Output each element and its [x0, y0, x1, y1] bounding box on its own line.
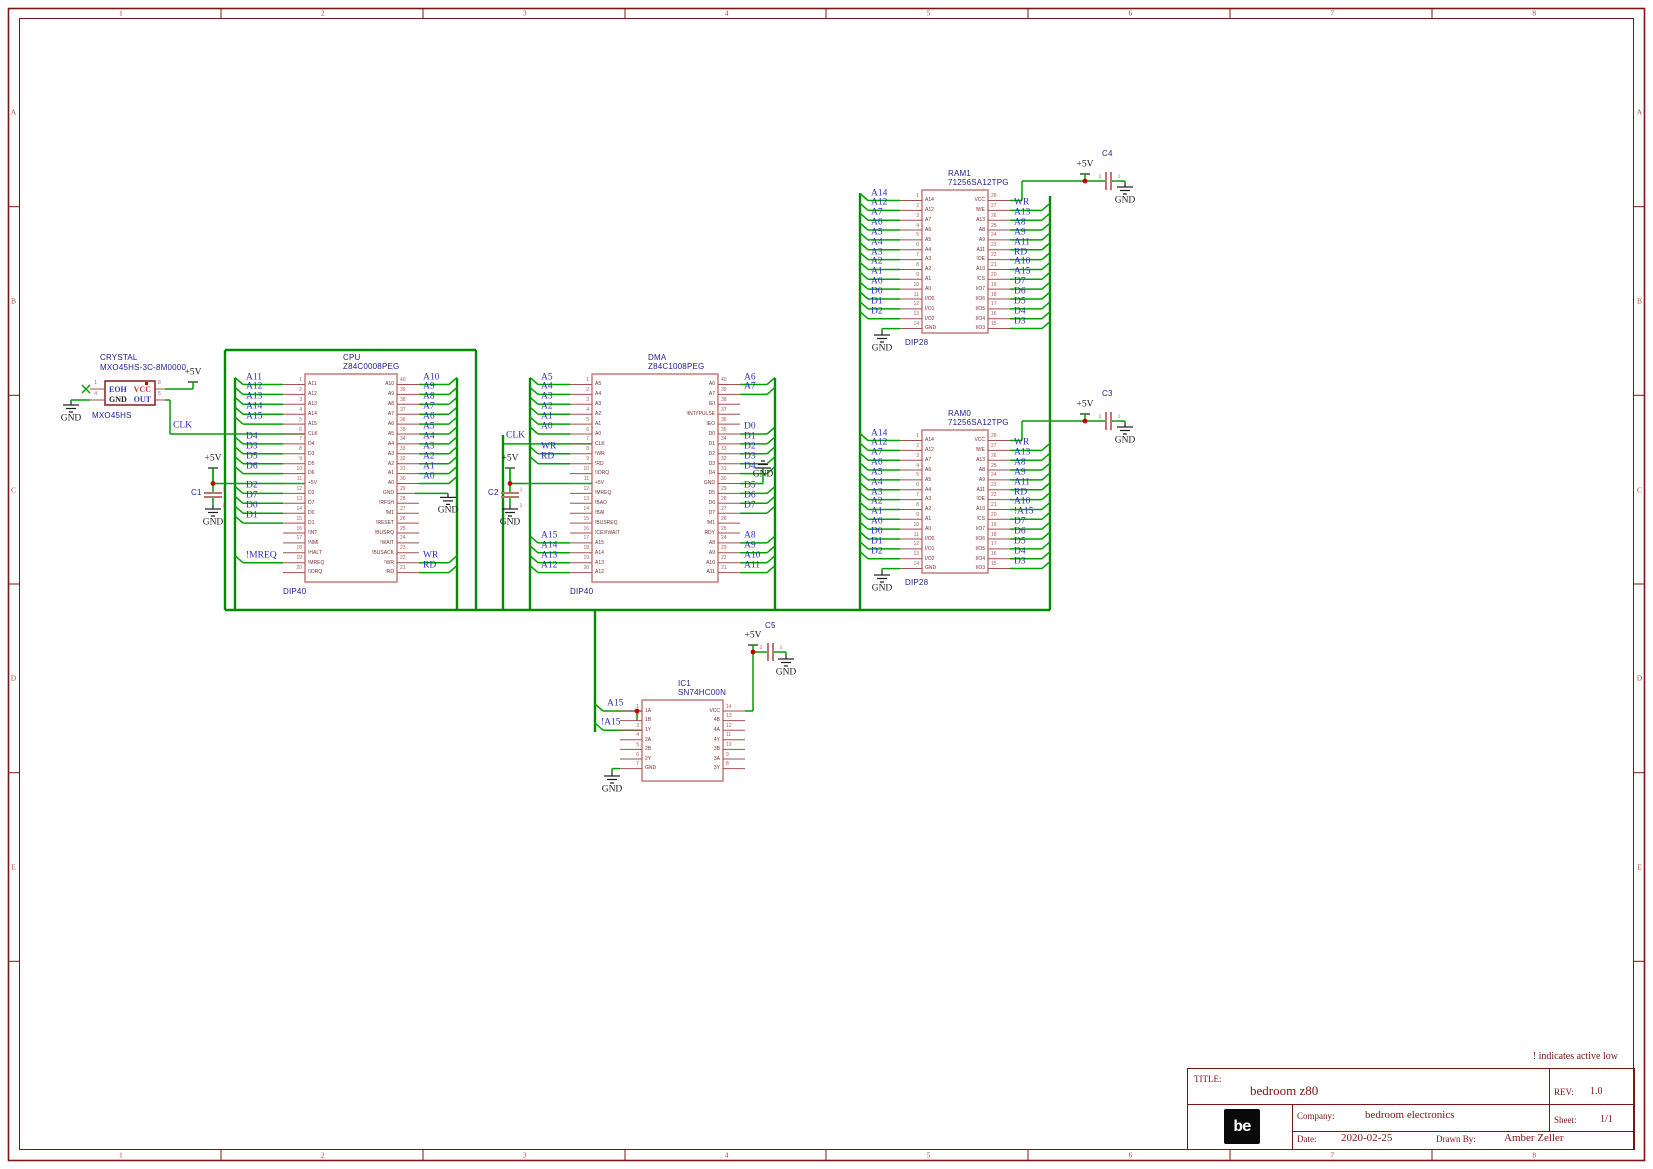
pin-number: 4: [916, 224, 919, 229]
pin-name: A10: [385, 382, 394, 387]
pin-name: A1: [595, 422, 601, 427]
pin-number: 33: [721, 447, 727, 452]
pin-name: A4: [595, 392, 601, 397]
pin-number: 21: [991, 503, 997, 508]
pin-number: 13: [296, 497, 302, 502]
pin-number: 2: [916, 204, 919, 209]
pin-number: 30: [400, 477, 406, 482]
pin-name: !BAO: [595, 501, 607, 506]
pin-name: A11: [308, 382, 317, 387]
pin-number: 23: [991, 483, 997, 488]
pin-number: 14: [913, 562, 919, 567]
pin-name: A14: [925, 198, 934, 203]
chip-part: 71256SA12TPG: [948, 179, 1009, 187]
pin-name: D5: [308, 462, 314, 467]
pin-number: 8: [586, 447, 589, 452]
pin-number: 3: [916, 454, 919, 459]
v5-label: +5V: [502, 455, 519, 465]
sheet-title: bedroom z80: [1250, 1083, 1318, 1099]
pin-name: CLK: [308, 432, 318, 437]
pin-name: I/O3: [976, 326, 985, 331]
pin-number: 14: [583, 507, 589, 512]
pin-number: 24: [991, 233, 997, 238]
pin-name: A1: [925, 517, 931, 522]
v5-label: +5V: [1077, 161, 1094, 171]
pin-number: 19: [296, 556, 302, 561]
rev-label: REV:: [1554, 1087, 1574, 1097]
pin-name: A12: [308, 392, 317, 397]
pin-name: +5V: [308, 481, 317, 486]
pin-number: 37: [721, 408, 727, 413]
pin-name: A3: [388, 452, 394, 457]
pin-number: 7: [636, 762, 639, 767]
pin-name: RDY: [704, 531, 715, 536]
pin-name: VCC: [974, 438, 985, 443]
pin-number: 31: [400, 467, 406, 472]
capacitor-pin-number: 2: [1099, 415, 1102, 420]
pin-name: !IORQ: [595, 471, 609, 476]
pin-number: 36: [721, 418, 727, 423]
pin-number: 28: [721, 497, 727, 502]
frame-column-number: 2: [321, 10, 325, 18]
frame-row-letter: E: [11, 864, 16, 872]
pin-number: 39: [721, 388, 727, 393]
pin-name: A3: [925, 257, 931, 262]
pin-name: I/O4: [976, 557, 985, 562]
pin-name: D6: [308, 471, 314, 476]
active-low-note: ! indicates active low: [1533, 1052, 1618, 1062]
pin-name: !INT: [308, 531, 317, 536]
pin-number: 11: [726, 733, 731, 738]
pin-number: 13: [913, 312, 919, 317]
capacitor-ref: C3: [1102, 390, 1113, 398]
pin-name: !RD: [595, 462, 604, 467]
pin-number: 4: [586, 408, 589, 413]
pin-name: 4B: [714, 718, 720, 723]
pin-name: !WAIT: [380, 541, 394, 546]
pin-number: 2: [916, 444, 919, 449]
pin-number: 25: [991, 224, 997, 229]
gnd-label: GND: [500, 519, 521, 529]
pin-name: GND: [925, 326, 936, 331]
pin-number: 29: [721, 487, 727, 492]
pin-name: A6: [925, 228, 931, 233]
pin-number: 12: [913, 542, 919, 547]
pin-number: 31: [721, 467, 727, 472]
pin-name: D6: [709, 501, 715, 506]
sheet-border-inner: [20, 19, 1634, 1150]
pin-number: 34: [721, 437, 727, 442]
pin-name: A12: [925, 448, 934, 453]
pin-name: D7: [308, 501, 314, 506]
pin-name: 1A: [645, 709, 651, 714]
pin-number: 9: [299, 457, 302, 462]
pin-name: VCC: [709, 709, 720, 714]
junction-dot: [751, 650, 756, 655]
pin-number: 16: [991, 552, 997, 557]
pin-name: 2Y: [645, 757, 651, 762]
gnd-label: GND: [872, 585, 893, 595]
company-logo: be: [1224, 1109, 1260, 1144]
pin-number: 2: [299, 388, 302, 393]
pin-number: 36: [400, 418, 406, 423]
pin-name: +5V: [595, 481, 604, 486]
pin-name: A6: [388, 422, 394, 427]
pin-name: I/O7: [976, 287, 985, 292]
pin-name: A13: [976, 218, 985, 223]
pin-number: 25: [991, 464, 997, 469]
frame-column-number: 5: [927, 10, 931, 18]
pin-number: 8: [916, 263, 919, 268]
title-label: TITLE:: [1194, 1074, 1222, 1084]
chip-ref: DMA: [648, 354, 666, 362]
pin-number: 15: [991, 322, 997, 327]
pin-name: A11: [976, 248, 985, 253]
pin-name: A7: [709, 392, 715, 397]
net-label: A15: [246, 413, 262, 423]
pin-number: 21: [991, 263, 997, 268]
pin-name: A14: [925, 438, 934, 443]
pin-number: 26: [991, 454, 997, 459]
gnd-label: GND: [438, 507, 459, 517]
pin-number: 11: [584, 477, 589, 482]
pin-number: 30: [721, 477, 727, 482]
capacitor-ref: C5: [765, 622, 776, 630]
pin-number: 11: [914, 533, 919, 538]
pin-name: D2: [709, 452, 715, 457]
pin-number: 17: [583, 536, 589, 541]
chip-package: DIP28: [905, 579, 928, 587]
sheet-border-outer: [9, 9, 1645, 1161]
pin-name: !CS: [977, 517, 985, 522]
pin-number: 19: [583, 556, 589, 561]
pin-number: 15: [296, 517, 302, 522]
v5-label: +5V: [185, 369, 202, 379]
frame-column-number: 8: [1532, 10, 1536, 18]
pin-name: D3: [308, 452, 314, 457]
pin-name: GND: [925, 566, 936, 571]
pin-number: 7: [299, 437, 302, 442]
pin-number: 1: [916, 434, 919, 439]
frame-row-letter: C: [11, 486, 16, 494]
pin-number: 7: [916, 493, 919, 498]
pin-number: 12: [913, 302, 919, 307]
pin-name: A13: [308, 402, 317, 407]
pin-number: 27: [991, 444, 997, 449]
pin-number: 24: [721, 536, 727, 541]
pin-number: 16: [583, 527, 589, 532]
pin-name: GND: [109, 396, 127, 404]
pin-name: A13: [595, 561, 604, 566]
pin-name: A5: [925, 478, 931, 483]
pin-name: D5: [709, 491, 715, 496]
chip-ref: CPU: [343, 354, 361, 362]
pin-number: 21: [400, 566, 406, 571]
frame-row-letter: A: [1637, 109, 1642, 117]
pin-number: 8: [916, 503, 919, 508]
pin-number: 18: [991, 293, 997, 298]
pin-name: GND: [645, 766, 656, 771]
pin-name: D4: [709, 471, 715, 476]
pin-name: !HALT: [308, 551, 322, 556]
capacitor-pin-number: 2: [760, 646, 763, 651]
pin-number: 6: [916, 243, 919, 248]
junction-dot: [211, 481, 216, 486]
pin-name: I/O2: [925, 557, 934, 562]
pin-name: D3: [709, 462, 715, 467]
pin-name: I/O4: [976, 317, 985, 322]
pin-number: 38: [721, 398, 727, 403]
pin-name: I/O2: [925, 317, 934, 322]
pin-number: 3: [636, 724, 639, 729]
gnd-label: GND: [1115, 437, 1136, 447]
chip-package: DIP40: [570, 588, 593, 596]
pin-name: !CS: [977, 277, 985, 282]
pin-number: 24: [400, 536, 406, 541]
pin-number: 1: [636, 705, 639, 710]
frame-column-number: 8: [1532, 1152, 1536, 1160]
pin-name: A9: [709, 551, 715, 556]
pin-name: A0: [388, 481, 394, 486]
capacitor-pin-number: 2: [223, 504, 226, 509]
pin-number: 8: [726, 762, 729, 767]
pin-number: 9: [586, 457, 589, 462]
pin-number: 35: [400, 428, 406, 433]
v5-label: +5V: [1077, 401, 1094, 411]
pin-name: A9: [979, 478, 985, 483]
pin-name: !OE: [976, 257, 985, 262]
schematic-graphics: [0, 0, 1653, 1169]
pin-name: 4A: [714, 728, 720, 733]
pin-name: A8: [979, 228, 985, 233]
frame-row-letter: D: [11, 675, 16, 683]
pin-number: 2: [586, 388, 589, 393]
pin-number: 23: [400, 546, 406, 551]
pin-name: D0: [709, 432, 715, 437]
pin-number: 26: [991, 214, 997, 219]
pin-name: A4: [925, 248, 931, 253]
pin-number: 22: [991, 253, 997, 258]
pin-number: 24: [991, 473, 997, 478]
pin-number: 27: [400, 507, 406, 512]
pin-name: I/O0: [925, 297, 934, 302]
title-block: TITLE: bedroom z80 REV: 1.0 be Company: …: [1187, 1068, 1635, 1150]
frame-column-number: 2: [321, 1152, 325, 1160]
pin-number: 20: [583, 566, 589, 571]
pin-name: A4: [388, 442, 394, 447]
capacitor-pin-number: 1: [1118, 415, 1121, 420]
pin-number: 22: [721, 556, 727, 561]
pin-name: A11: [706, 570, 715, 575]
pin-number: 22: [400, 556, 406, 561]
chip-ref: IC1: [678, 680, 691, 688]
capacitor-pin-number: 1: [223, 488, 226, 493]
pin-name: !NMI: [308, 541, 319, 546]
pin-name: 3Y: [714, 766, 720, 771]
drawn-by-value: Amber Zeller: [1504, 1132, 1564, 1144]
pin-number: 32: [721, 457, 727, 462]
pin-number: 10: [913, 523, 919, 528]
pin-number: 5: [916, 473, 919, 478]
pin-number: 17: [991, 302, 997, 307]
pin-number: 27: [991, 204, 997, 209]
pin-name: 2A: [645, 738, 651, 743]
pin-name: !OE: [976, 497, 985, 502]
pin-number: 14: [913, 322, 919, 327]
pin-number: 39: [400, 388, 406, 393]
pin-name: A10: [706, 561, 715, 566]
crystal-ref: CRYSTAL: [100, 354, 138, 362]
pin-number: 14: [296, 507, 302, 512]
net-label: RD: [541, 452, 554, 462]
pin-name: !RD: [385, 570, 394, 575]
pin-number: 20: [296, 566, 302, 571]
net-label: A15: [607, 700, 623, 710]
gnd-label: GND: [61, 415, 82, 425]
net-label: D3: [1014, 557, 1026, 567]
capacitor-ref: C4: [1102, 150, 1113, 158]
pin-name: A14: [595, 551, 604, 556]
pin-number: 10: [583, 467, 589, 472]
pin-name: I/O7: [976, 527, 985, 532]
frame-row-letter: D: [1637, 675, 1642, 683]
net-label: A12: [541, 561, 557, 571]
pin-number: 7: [586, 437, 589, 442]
pin-name: GND: [383, 491, 394, 496]
pin-number: 25: [400, 527, 406, 532]
pin-name: A11: [976, 488, 985, 493]
chip-part: 71256SA12TPG: [948, 419, 1009, 427]
pin-name: !WE: [976, 208, 985, 213]
chip-part: Z84C0008PEG: [343, 363, 399, 371]
pin-name: A6: [709, 382, 715, 387]
pin-name: A8: [979, 468, 985, 473]
capacitor-pin-number: 1: [780, 646, 783, 651]
pin-number: 7: [916, 253, 919, 258]
capacitor-pin-number: 1: [520, 488, 523, 493]
pin-name: A1: [388, 471, 394, 476]
pin-name: D7: [709, 511, 715, 516]
pin-name: OUT: [134, 396, 151, 404]
net-label: D2: [871, 547, 883, 557]
pin-name: !WR: [595, 452, 605, 457]
pin-number: 23: [721, 546, 727, 551]
pin-name: !M1: [386, 511, 394, 516]
pin-name: A6: [925, 468, 931, 473]
pin-number: 22: [991, 493, 997, 498]
pin-name: I/O1: [925, 547, 934, 552]
net-label: CLK: [173, 422, 192, 432]
pin-name: 4Y: [714, 738, 720, 743]
frame-column-number: 3: [523, 1152, 527, 1160]
pin-number: 27: [721, 507, 727, 512]
pin-number: 5: [158, 392, 161, 397]
pin-name: !MREQ: [308, 561, 324, 566]
pin-number: 26: [400, 517, 406, 522]
capacitor-pin-number: 2: [520, 504, 523, 509]
pin-name: A7: [925, 218, 931, 223]
pin-name: A9: [388, 392, 394, 397]
pin-name: 1Y: [645, 728, 651, 733]
pin-name: GND: [704, 481, 715, 486]
pin-name: !IORQ: [308, 570, 322, 575]
pin-name: A1: [925, 277, 931, 282]
sheet-label: Sheet:: [1554, 1115, 1577, 1125]
pin-name: !M1: [707, 521, 715, 526]
net-label: !A15: [601, 719, 621, 729]
company-label: Company:: [1297, 1111, 1335, 1121]
gnd-label: GND: [1115, 197, 1136, 207]
chip-part: SN74HC00N: [678, 689, 726, 697]
pin-number: 4: [299, 408, 302, 413]
net-label: A0: [423, 472, 435, 482]
pin-name: A2: [925, 267, 931, 272]
pin-name: A15: [595, 541, 604, 546]
pin-number: 11: [914, 293, 919, 298]
pin-number: 21: [721, 566, 727, 571]
pin-number: 18: [991, 533, 997, 538]
pin-number: 37: [400, 408, 406, 413]
pin-number: 16: [296, 527, 302, 532]
pin-number: 23: [991, 243, 997, 248]
pin-name: A0: [925, 527, 931, 532]
pin-name: I/O0: [925, 537, 934, 542]
pin-number: 3: [299, 398, 302, 403]
pin-number: 34: [400, 437, 406, 442]
pin-name: A8: [709, 541, 715, 546]
pin-name: !RESET: [376, 521, 394, 526]
pin-name: A2: [388, 462, 394, 467]
junction-dot: [1083, 419, 1088, 424]
net-label: !MREQ: [246, 551, 277, 561]
pin-number: 19: [991, 283, 997, 288]
pin-number: 4: [94, 392, 97, 397]
pin-name: A3: [595, 402, 601, 407]
pin-name: A14: [308, 412, 317, 417]
pin-number: 10: [296, 467, 302, 472]
pin-name: A15: [308, 422, 317, 427]
rev-value: 1.0: [1590, 1086, 1603, 1097]
pin-name: A8: [388, 402, 394, 407]
pin-name: !BUSACK: [372, 551, 394, 556]
pin-number: 17: [296, 536, 302, 541]
crystal-part: MXO45HS-3C-8M0000: [100, 364, 186, 372]
pin-name: CLK: [595, 442, 605, 447]
pin-number: 40: [721, 378, 727, 383]
pin-name: I/O6: [976, 297, 985, 302]
pin-name: I/O6: [976, 537, 985, 542]
pin-number: 16: [991, 312, 997, 317]
pin-number: 9: [916, 273, 919, 278]
pin-number: 12: [583, 487, 589, 492]
pin-name: D1: [709, 442, 715, 447]
pin-name: IEI: [709, 402, 715, 407]
pin-number: 20: [991, 513, 997, 518]
pin-number: 32: [400, 457, 406, 462]
pin-number: 5: [636, 743, 639, 748]
pin-name: I/O5: [976, 307, 985, 312]
pin-number: 10: [913, 283, 919, 288]
pin-name: 2B: [645, 747, 651, 752]
frame-row-letter: E: [1637, 864, 1642, 872]
capacitor-ref: C1: [191, 489, 202, 497]
pin-number: 10: [726, 743, 732, 748]
net-label: D1: [246, 512, 258, 522]
pin-name: !MREQ: [595, 491, 611, 496]
pin-number: 29: [400, 487, 406, 492]
pin-number: 12: [296, 487, 302, 492]
pin-name: A7: [925, 458, 931, 463]
